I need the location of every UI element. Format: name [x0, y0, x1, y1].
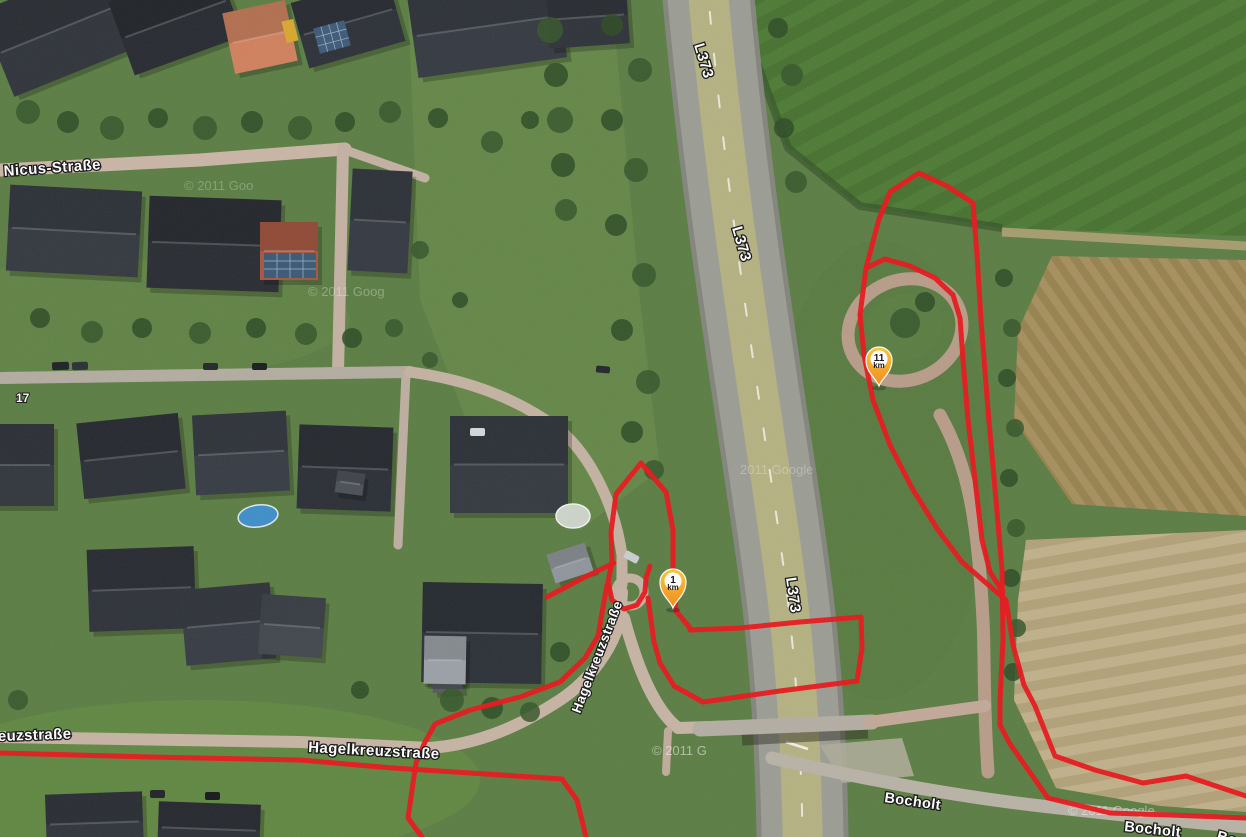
map-canvas[interactable]: © 2011 Goog 2011 Google © 2011 G © 2011 …	[0, 0, 1246, 837]
photo-grain-overlay	[0, 0, 1246, 837]
satellite-map: © 2011 Goog 2011 Google © 2011 G © 2011 …	[0, 0, 1246, 837]
